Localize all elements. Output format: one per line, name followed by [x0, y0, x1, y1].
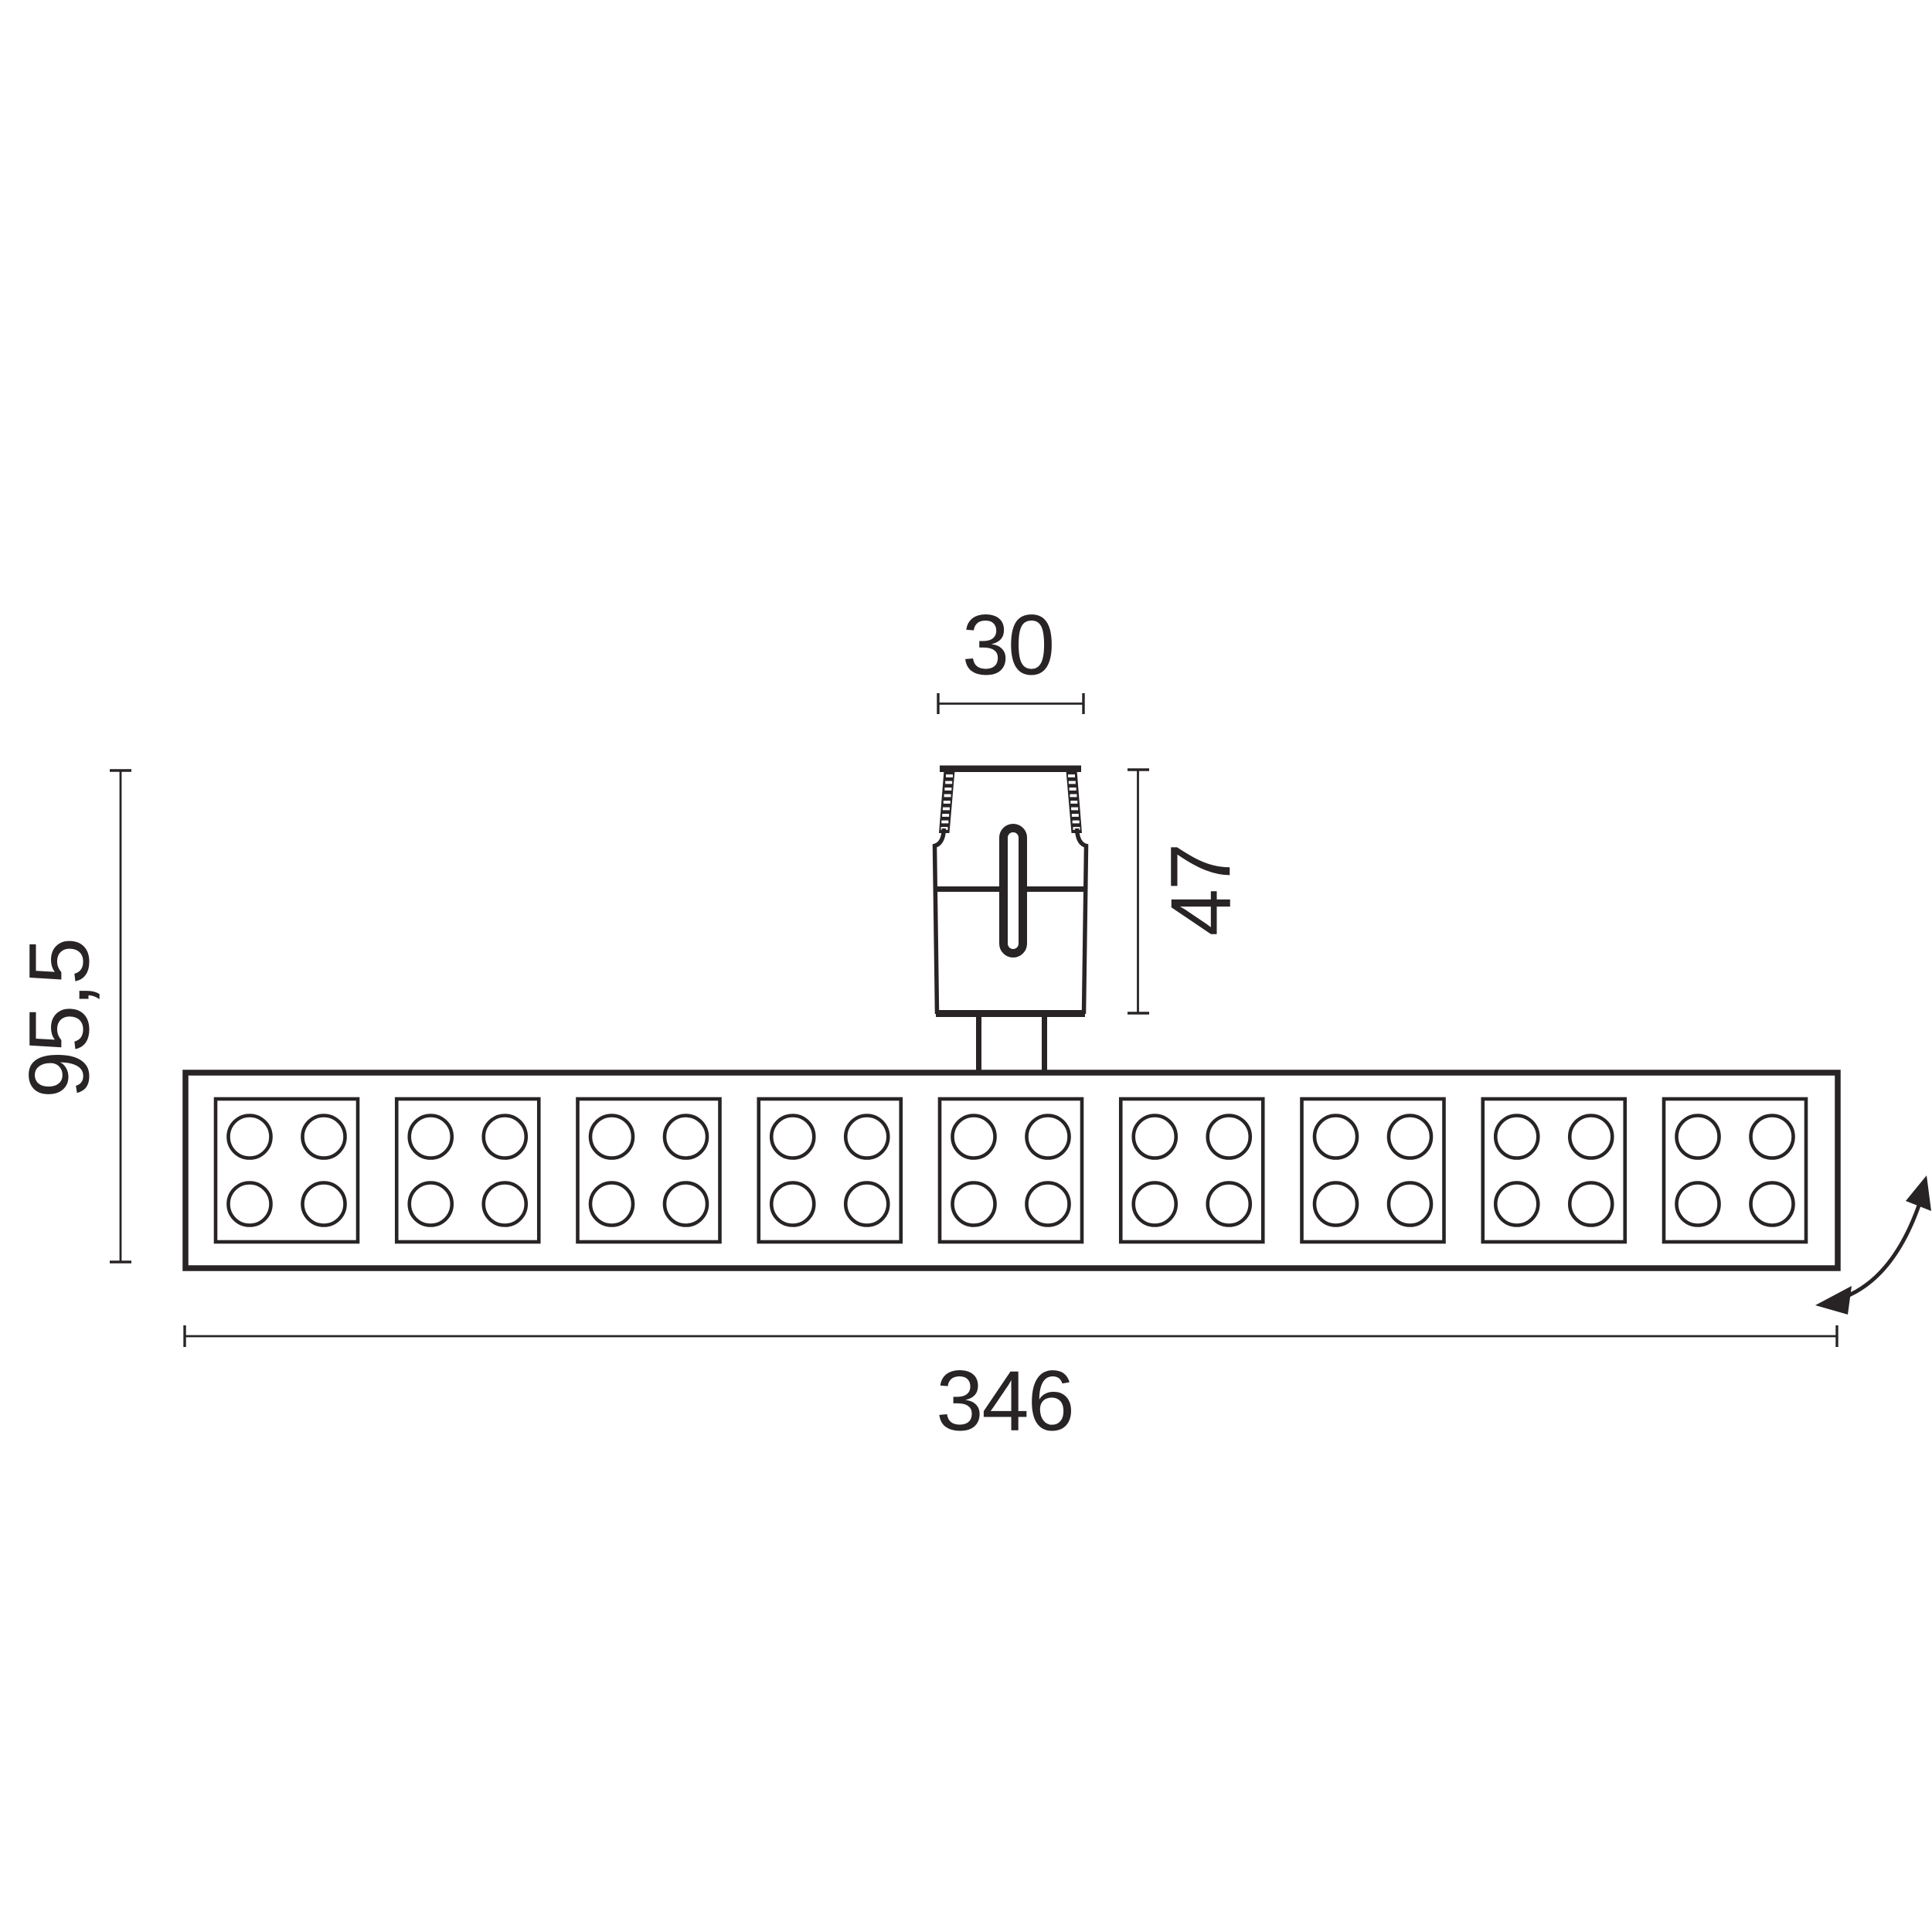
led-modules — [216, 1099, 1806, 1242]
led-circle — [303, 1116, 345, 1158]
led-circle — [1134, 1183, 1176, 1226]
rotation-arrow-head-top — [1906, 1175, 1931, 1211]
led-module — [396, 1099, 539, 1242]
led-circle — [1208, 1116, 1250, 1158]
technical-drawing: 30 47 95,5 346 — [0, 0, 1932, 1932]
led-module — [940, 1099, 1082, 1242]
led-circle — [845, 1183, 888, 1226]
rotation-arrow-arc — [1845, 1203, 1920, 1297]
led-circle — [1677, 1183, 1719, 1226]
led-circle — [1389, 1116, 1431, 1158]
knurl-tooth — [945, 781, 952, 784]
adapter-knurl-teeth — [941, 774, 1080, 830]
led-module — [216, 1099, 358, 1242]
led-circle — [1495, 1116, 1538, 1158]
led-circle — [953, 1116, 995, 1158]
led-module — [1483, 1099, 1625, 1242]
knurl-tooth — [944, 801, 951, 804]
knurl-tooth — [1070, 787, 1077, 791]
led-circle — [665, 1116, 707, 1158]
led-circle — [303, 1183, 345, 1226]
dim-overall-width: 346 — [185, 1325, 1837, 1449]
knurl-tooth — [1073, 821, 1080, 824]
led-circle — [1208, 1183, 1250, 1226]
track-adapter — [935, 766, 1087, 1073]
dim-adapter-width: 30 — [938, 598, 1083, 715]
led-circle — [1495, 1183, 1538, 1226]
dim-overall-width-label: 346 — [936, 1354, 1073, 1449]
led-circle — [410, 1183, 452, 1226]
led-circle — [590, 1183, 633, 1226]
fixture-bar-outline — [185, 1073, 1838, 1268]
knurl-tooth — [944, 787, 951, 791]
led-circle — [1751, 1183, 1794, 1226]
knurl-tooth — [1071, 808, 1078, 811]
knurl-tooth — [943, 808, 950, 811]
led-circle — [771, 1183, 814, 1226]
led-circle — [771, 1116, 814, 1158]
led-circle — [410, 1116, 452, 1158]
adapter-lock-slot — [1004, 828, 1023, 954]
led-module — [1302, 1099, 1444, 1242]
led-circle — [484, 1183, 526, 1226]
led-circle — [484, 1116, 526, 1158]
led-circle — [1570, 1183, 1612, 1226]
knurl-tooth — [944, 794, 951, 798]
dim-adapter-height: 47 — [1128, 770, 1249, 1013]
led-module — [1664, 1099, 1806, 1242]
fixture-bar — [185, 1073, 1838, 1268]
led-circle — [665, 1183, 707, 1226]
led-circle — [229, 1116, 271, 1158]
led-circle — [1027, 1183, 1070, 1226]
dim-adapter-height-label: 47 — [1154, 845, 1249, 936]
knurl-tooth — [942, 814, 949, 817]
adapter-top-cap — [940, 766, 1081, 773]
led-module — [578, 1099, 720, 1242]
adapter-side-right — [1077, 828, 1087, 1014]
adapter-side-left — [935, 828, 944, 1014]
led-circle — [845, 1116, 888, 1158]
knurl-tooth — [1070, 794, 1077, 798]
led-circle — [229, 1183, 271, 1226]
led-module — [1121, 1099, 1263, 1242]
dim-overall-height: 95,5 — [12, 770, 132, 1262]
led-circle — [590, 1116, 633, 1158]
knurl-tooth — [1070, 801, 1077, 804]
drawing-page: 30 47 95,5 346 — [0, 0, 1932, 1932]
led-circle — [1751, 1116, 1794, 1158]
led-circle — [1315, 1116, 1357, 1158]
led-circle — [953, 1183, 995, 1226]
led-circle — [1027, 1116, 1070, 1158]
knurl-tooth — [1069, 781, 1076, 784]
led-circle — [1315, 1183, 1357, 1226]
led-circle — [1134, 1116, 1176, 1158]
led-module — [759, 1099, 901, 1242]
knurl-tooth — [1072, 814, 1079, 817]
rotation-arrow-icon — [1815, 1175, 1931, 1315]
knurl-tooth — [1068, 774, 1075, 777]
dim-adapter-width-label: 30 — [962, 598, 1053, 693]
rotation-arrow-head-left — [1815, 1286, 1852, 1315]
led-circle — [1677, 1116, 1719, 1158]
led-circle — [1570, 1116, 1612, 1158]
led-circle — [1389, 1183, 1431, 1226]
knurl-tooth — [941, 821, 948, 824]
dim-overall-height-label: 95,5 — [12, 939, 107, 1098]
knurl-tooth — [946, 774, 953, 777]
